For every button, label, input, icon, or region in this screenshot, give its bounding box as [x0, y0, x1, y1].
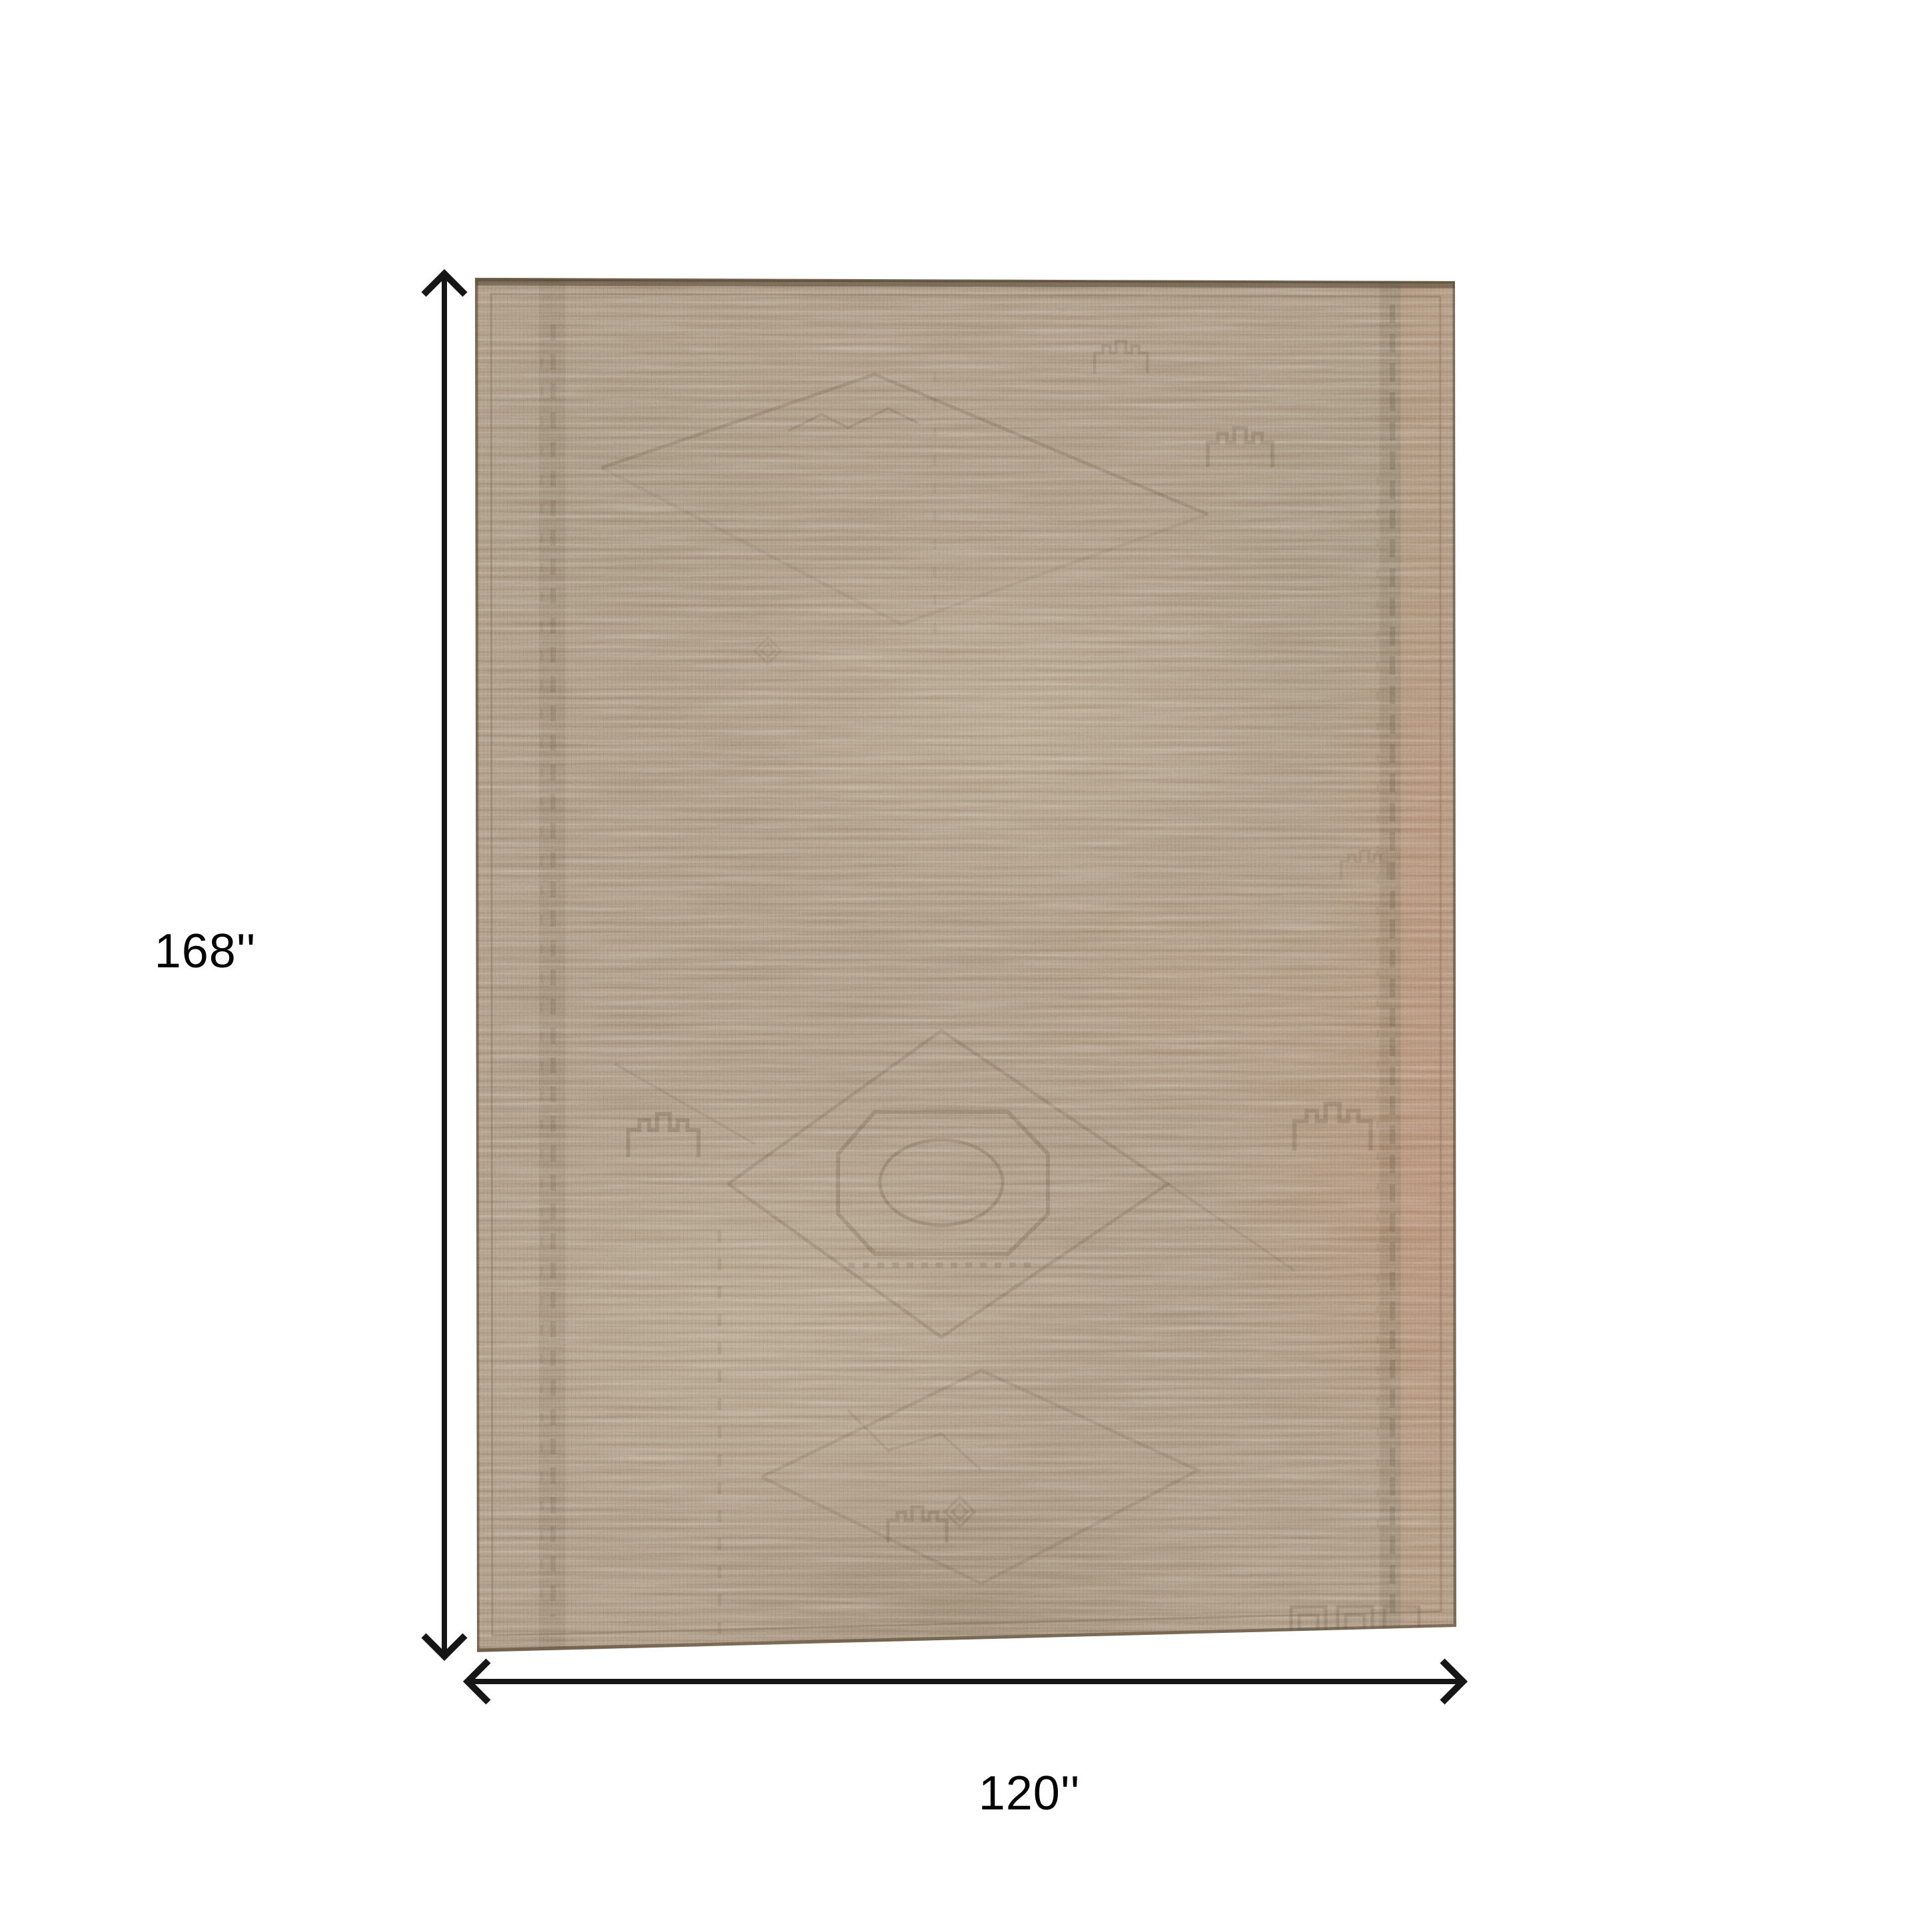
width-dimension-label: 120''	[929, 1769, 1129, 1817]
width-dimension-arrow	[468, 1661, 1463, 1702]
rug-image	[475, 278, 1459, 1652]
height-dimension-label: 168''	[105, 927, 305, 975]
rug-edge-lines	[475, 278, 1459, 1652]
diagram-canvas: 168'' 120''	[0, 0, 1932, 1932]
height-dimension-arrow	[424, 274, 465, 1656]
